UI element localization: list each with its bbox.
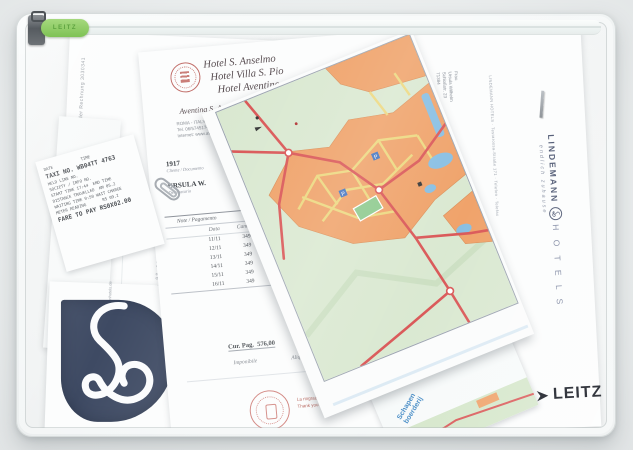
hotel-crest-icon bbox=[169, 61, 202, 94]
leitz-chevron-icon bbox=[536, 388, 551, 404]
leitz-logo: LEITZ bbox=[536, 383, 603, 404]
sender-microtext: LINDEMANN HOTELS · Testarossa-Straße 171… bbox=[488, 75, 500, 216]
staple bbox=[539, 91, 544, 118]
document-number-field: 1917 Cliente / Documento bbox=[166, 157, 204, 173]
zip-pouch: Seite 1 der Rechnung 3030341 05 98 05 25… bbox=[16, 13, 616, 437]
legend-label: Schapen boerderij bbox=[396, 392, 425, 426]
leitz-wordmark: LEITZ bbox=[553, 383, 603, 404]
script-l-icon bbox=[551, 209, 560, 218]
amount-paid: Cur. Pag. 576,00 bbox=[228, 340, 276, 352]
pouch-contents: Seite 1 der Rechnung 3030341 05 98 05 25… bbox=[25, 22, 607, 428]
red-stamp-icon bbox=[248, 389, 291, 428]
zipper-strip bbox=[31, 20, 601, 35]
zipper-pull-tab: LEITZ bbox=[41, 19, 89, 37]
pull-tab-label: LEITZ bbox=[53, 25, 77, 31]
lindemann-wordmark: LINDEMANN H O T E L S endlich zuhause bbox=[537, 134, 567, 309]
tax-label: Imponibile bbox=[233, 358, 257, 366]
product-photo-stage: Seite 1 der Rechnung 3030341 05 98 05 25… bbox=[0, 0, 633, 450]
script-l-flourish-icon bbox=[57, 298, 171, 420]
wordmark-name: LINDEMANN bbox=[546, 134, 560, 203]
monogram-circle-icon bbox=[549, 207, 563, 221]
lindemann-logo-shape bbox=[61, 300, 175, 422]
wordmark-hotels: H O T E L S bbox=[551, 224, 565, 308]
